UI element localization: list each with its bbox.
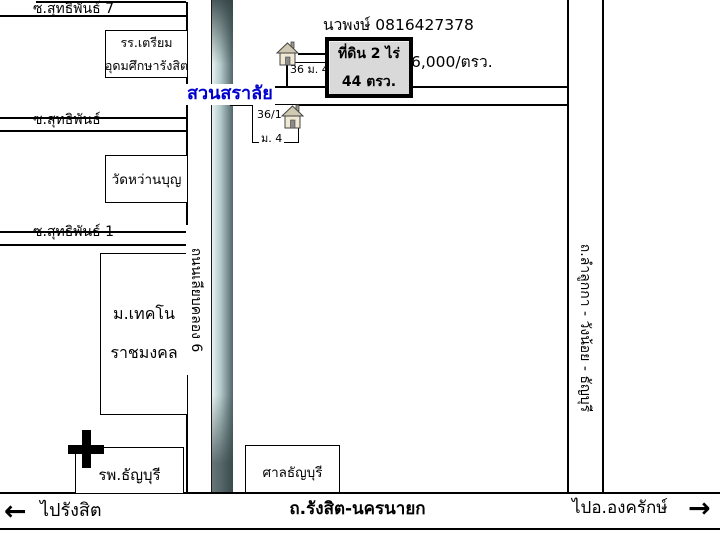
road-line-right-west — [567, 0, 569, 493]
hospital-name: รพ.ธัญบุรี — [98, 463, 160, 487]
temple-box: วัดหว่านบุญ — [105, 155, 188, 203]
main-vertical-road — [211, 0, 233, 493]
east-direction-label: ไปอ.องครักษ์ — [572, 499, 667, 519]
soi7-label: ซ.สุทธิพันธ์ 7 — [33, 1, 114, 17]
court-box: ศาลธัญบุรี — [245, 445, 340, 493]
west-arrow-icon: ← — [4, 498, 27, 525]
university-name-line2: ราชมงคล — [110, 341, 177, 366]
house-icon — [276, 40, 299, 71]
house-icon — [281, 103, 304, 134]
school-name-line1: รร.เตรียม — [120, 33, 172, 53]
hospital-cross-icon — [68, 430, 104, 468]
school-name-line2: อุดมศึกษารังสิต — [105, 56, 188, 76]
plot-size-line2: 44 ตรว. — [342, 71, 396, 93]
court-name: ศาลธัญบุรี — [263, 461, 323, 483]
right-road-label: ถ.ลำลูกกา - วังน้อย - ธัญบุรี — [575, 213, 595, 443]
house2-address-label: 36/1 — [257, 109, 282, 122]
road-line-right-east — [602, 0, 604, 493]
contact-label: นวพงษ์ 0816427378 — [323, 17, 474, 35]
east-arrow-icon: → — [688, 495, 711, 522]
university-name-line1: ม.เทคโน — [113, 302, 175, 327]
garden-label: สวนสราลัย — [185, 84, 275, 105]
road-line-soimid-bottom — [0, 130, 186, 132]
bottom-road-label: ถ.รังสิต-นครนายก — [250, 500, 465, 520]
soimid-label: ซ.สุทธิพันธ์ — [33, 112, 101, 128]
temple-name: วัดหว่านบุญ — [112, 168, 182, 190]
left-road-label: ถนนเลียบคลอง 6 — [186, 225, 206, 375]
house2-moo-label: ม. 4 — [259, 133, 284, 146]
land-plot-box: ที่ดิน 2 ไร่ 44 ตรว. — [325, 37, 413, 98]
university-box: ม.เทคโน ราชมงคล — [100, 253, 188, 415]
school-box: รร.เตรียม อุดมศึกษารังสิต — [105, 30, 188, 78]
west-direction-label: ไปรังสิต — [40, 501, 102, 522]
road-line-bottom-bottom — [0, 528, 720, 530]
plot-size-line1: ที่ดิน 2 ไร่ — [338, 43, 400, 65]
soi1-label: ซ.สุทธิพันธ์ 1 — [33, 224, 114, 240]
road-line-soi1-bottom — [0, 244, 186, 246]
price-label: 6,000/ตรว. — [411, 54, 493, 72]
house1-connector-line — [298, 53, 325, 55]
hand-drawn-map: ซ.สุทธิพันธ์ 7 ซ.สุทธิพันธ์ ซ.สุทธิพันธ์… — [0, 0, 720, 540]
